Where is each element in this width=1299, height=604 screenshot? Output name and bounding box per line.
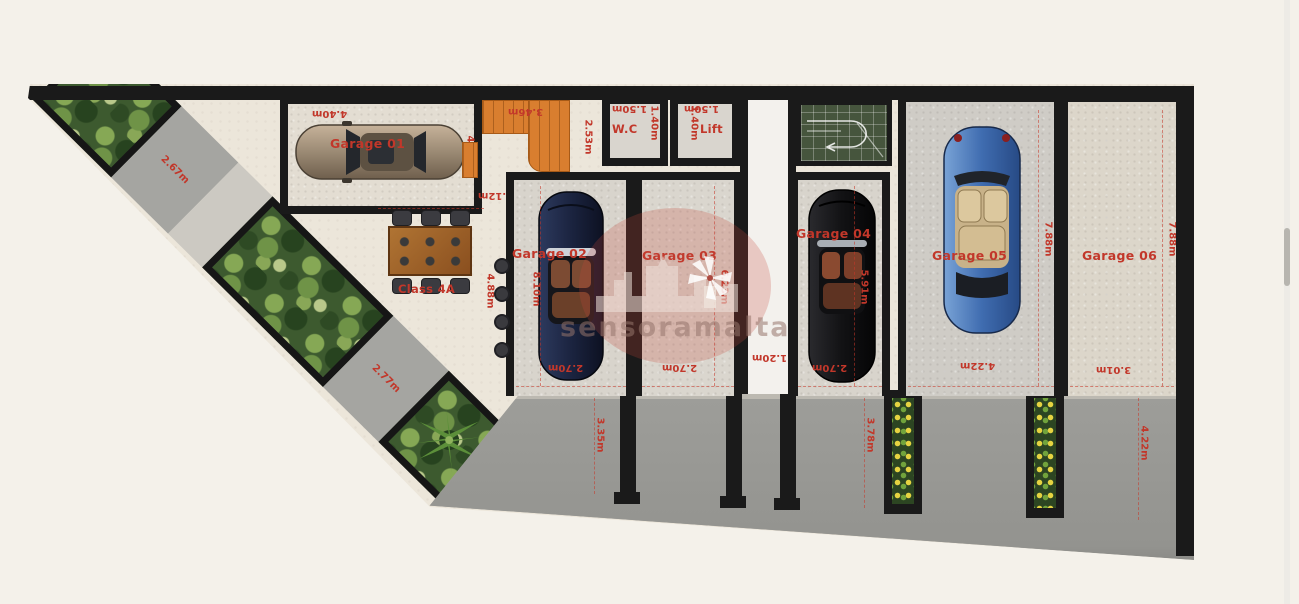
car-top-view-icon-garage-01 [294,120,466,184]
dim-line [516,386,626,387]
dim-line [1070,386,1174,387]
path-1-dim: 2.67m [158,154,191,187]
turning-ramp [796,100,892,166]
corridor-width-dim: 1.20m [752,352,787,362]
garage-02-outer-dim: 4.88m [485,273,495,308]
chair-icon [392,210,412,226]
garage-05-depth-dim: 7.88m [1043,221,1053,256]
dim-line [642,386,734,387]
site-plan: 2.67m 2.77m [0,0,1299,604]
street-wall-stub [780,390,796,508]
street-dim-mid: 3.78m [865,417,875,452]
scrollbar-thumb[interactable] [1284,228,1290,286]
street-wall-stub-foot [720,496,746,508]
corridor [740,96,796,394]
dim-line [798,386,882,387]
dim-line [1162,110,1163,386]
garage-01-width-dim: 4.40m [312,108,347,118]
watermark-text: sensoramalta [560,312,791,343]
chair-icon [421,210,441,226]
garage-03-label: Garage 03 [642,248,717,263]
wc-side-dim: 1.40m [649,105,659,140]
street-wall-stub-foot [774,498,800,510]
dining-table [388,226,472,276]
garage-02-width-dim: 2.70m [548,362,583,372]
dim-line [854,186,855,386]
stool-icon [494,314,510,330]
lift-label: Lift [700,122,723,136]
flower-planter-icon [1034,398,1056,508]
street-wall-stub [726,390,742,506]
wc-top-dim: 1.50m [612,103,647,113]
stool-icon [494,342,510,358]
garage-04-label: Garage 04 [796,226,871,241]
chair-icon [450,210,470,226]
car-top-view-icon-garage-02 [534,190,608,382]
floorplan-screenshot: 2.67m 2.77m [0,0,1299,604]
dim-line [540,186,541,386]
garage-04-width-dim: 2.70m [812,362,847,372]
garage-06-room [1060,94,1184,396]
stool-icon [494,258,510,274]
garage-06-label: Garage 06 [1082,248,1157,263]
stairs-top-dim: 3.46m [508,106,543,116]
garage-04-depth-dim: 5.91m [859,269,869,304]
street-wall-stub-foot [614,492,640,504]
street [418,390,1194,560]
garage-06-width-dim: 3.01m [1096,364,1131,374]
garage-03-depth-dim: 6.23m [719,269,729,304]
turning-arrow-icon [801,105,887,161]
garage-05-width-dim: 4.22m [960,360,995,370]
lift-side-dim: 1.40m [689,105,699,140]
stool-icon [494,286,510,302]
dining-area-label: Class 4A [398,282,455,296]
wc-label: W.C [612,122,637,136]
scrollbar-track [1284,0,1290,604]
path-2-dim: 2.77m [370,363,403,396]
car-top-view-icon-garage-05 [938,124,1026,336]
garage-05-label: Garage 05 [932,248,1007,263]
garage-01-label: Garage 01 [330,136,405,151]
dim-line [1038,110,1039,386]
flower-planter-icon [892,398,914,504]
street-dim-right: 4.22m [1139,425,1149,460]
garage-02-label: Garage 02 [512,246,587,261]
staircase-landing [462,142,478,178]
dim-line [908,386,1054,387]
top-boundary-wall [28,86,1194,100]
street-wall-stub [620,390,636,502]
dim-line [714,186,715,386]
dining-dim-line [378,208,484,209]
stairs-side-dim: 2.53m [583,119,593,154]
garage-03-width-dim: 2.70m [662,362,697,372]
right-boundary-wall [1176,86,1194,556]
street-dim-left: 3.35m [595,417,605,452]
garage-01-room [280,96,482,214]
dim-line [864,398,865,508]
